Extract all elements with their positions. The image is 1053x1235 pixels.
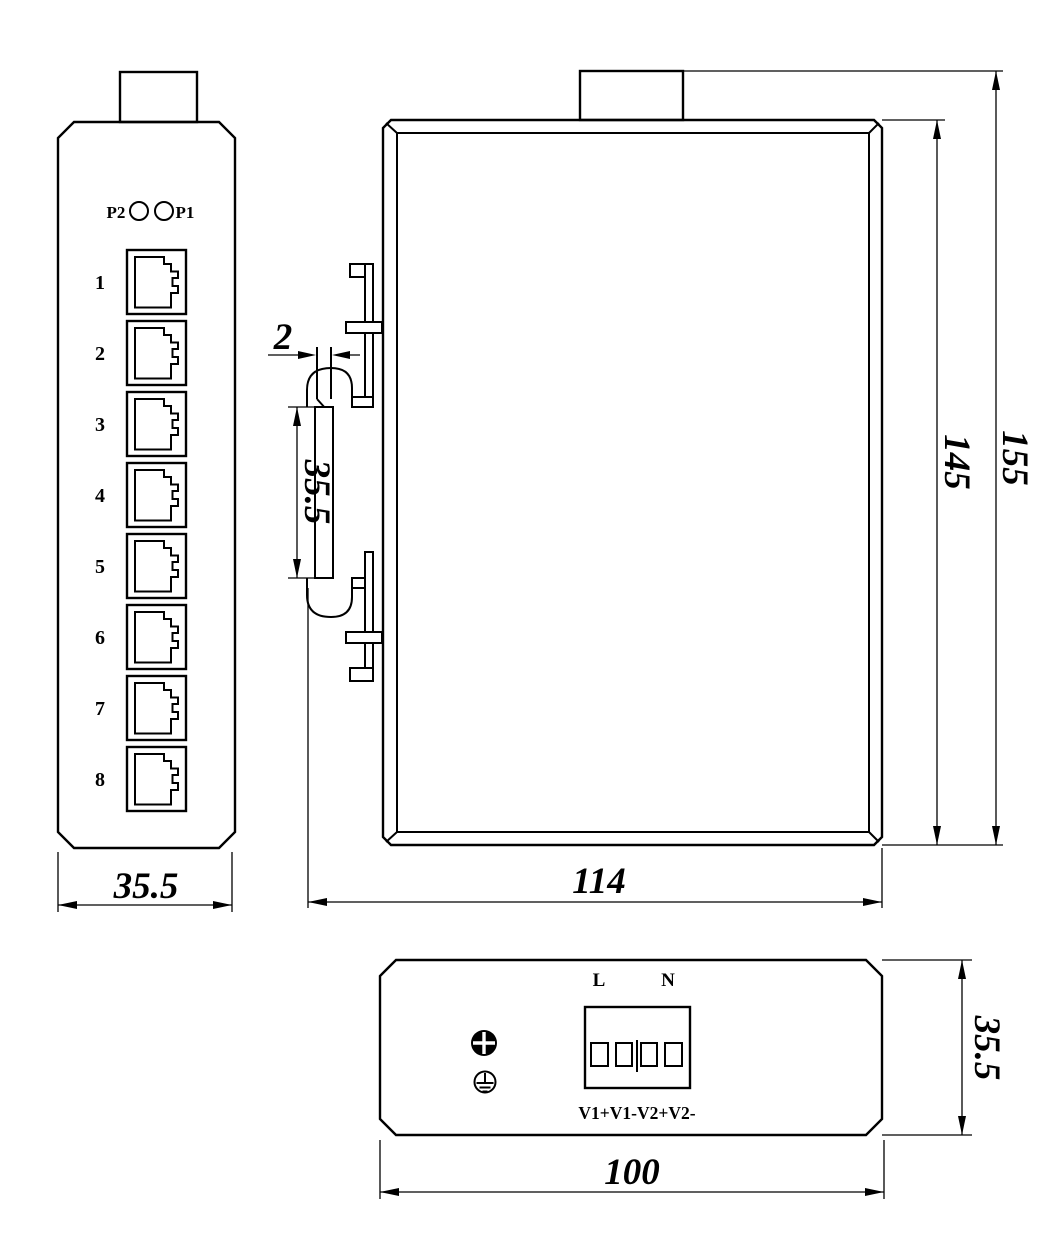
side-body-inner-panel — [397, 133, 869, 832]
total-height-dimension-text: 155 — [994, 430, 1035, 486]
bottom-width-dimension-text: 100 — [604, 1152, 660, 1193]
bottom-depth-dimension: 35.5 — [882, 960, 1007, 1135]
terminal-1 — [591, 1043, 608, 1066]
neutral-terminal-label: N — [661, 970, 675, 991]
dimension-drawing: P2 P1 1 2 3 4 5 6 7 8 35.5 — [0, 0, 1053, 1235]
rj45-port-5 — [127, 534, 186, 598]
phillips-screw-icon — [471, 1030, 497, 1056]
power-terminal-block — [585, 1007, 690, 1088]
port-label-4: 4 — [95, 485, 105, 507]
ground-screw-icon — [475, 1072, 496, 1093]
rail-height-dimension-text: 35.5 — [296, 459, 337, 525]
terminal-wiring-label: V1+V1-V2+V2- — [578, 1103, 695, 1123]
led-label-p1: P1 — [176, 203, 195, 222]
side-view: 2 35.5 114 145 155 — [268, 71, 1035, 908]
port-label-7: 7 — [95, 698, 105, 720]
front-top-tab — [120, 72, 197, 122]
port-label-2: 2 — [95, 343, 105, 365]
dimension-drawing-page: P2 P1 1 2 3 4 5 6 7 8 35.5 — [0, 0, 1053, 1235]
rj45-port-6 — [127, 605, 186, 669]
body-height-dimension-text: 145 — [936, 434, 977, 490]
rj45-port-8 — [127, 747, 186, 811]
side-body-outline — [383, 120, 882, 845]
slot-dimension-text: 2 — [273, 317, 293, 358]
terminal-4 — [665, 1043, 682, 1066]
rj45-port-1 — [127, 250, 186, 314]
port-label-3: 3 — [95, 414, 105, 436]
depth-dimension: 114 — [308, 588, 882, 908]
front-width-dimension: 35.5 — [58, 852, 232, 912]
depth-dimension-text: 114 — [572, 861, 625, 902]
led-label-p2: P2 — [107, 203, 126, 222]
led-indicator-p2 — [130, 202, 148, 220]
port-label-6: 6 — [95, 627, 105, 649]
led-indicator-p1 — [155, 202, 173, 220]
rj45-port-7 — [127, 676, 186, 740]
body-height-dimension: 145 155 — [683, 71, 1035, 845]
port-label-5: 5 — [95, 556, 105, 578]
rj45-port-3 — [127, 392, 186, 456]
bottom-depth-dimension-text: 35.5 — [966, 1015, 1007, 1081]
port-label-8: 8 — [95, 769, 105, 791]
side-top-tab — [580, 71, 683, 120]
rj45-port-4 — [127, 463, 186, 527]
bottom-width-dimension: 100 — [380, 1140, 884, 1199]
terminal-2 — [616, 1043, 632, 1066]
rj45-port-2 — [127, 321, 186, 385]
terminal-3 — [641, 1043, 657, 1066]
front-width-dimension-text: 35.5 — [113, 866, 179, 907]
front-view: P2 P1 1 2 3 4 5 6 7 8 35.5 — [58, 72, 235, 912]
line-terminal-label: L — [593, 970, 606, 991]
port-label-1: 1 — [95, 272, 105, 294]
bottom-view: L N V1+V1-V2+V2- 100 35.5 — [380, 960, 1007, 1199]
